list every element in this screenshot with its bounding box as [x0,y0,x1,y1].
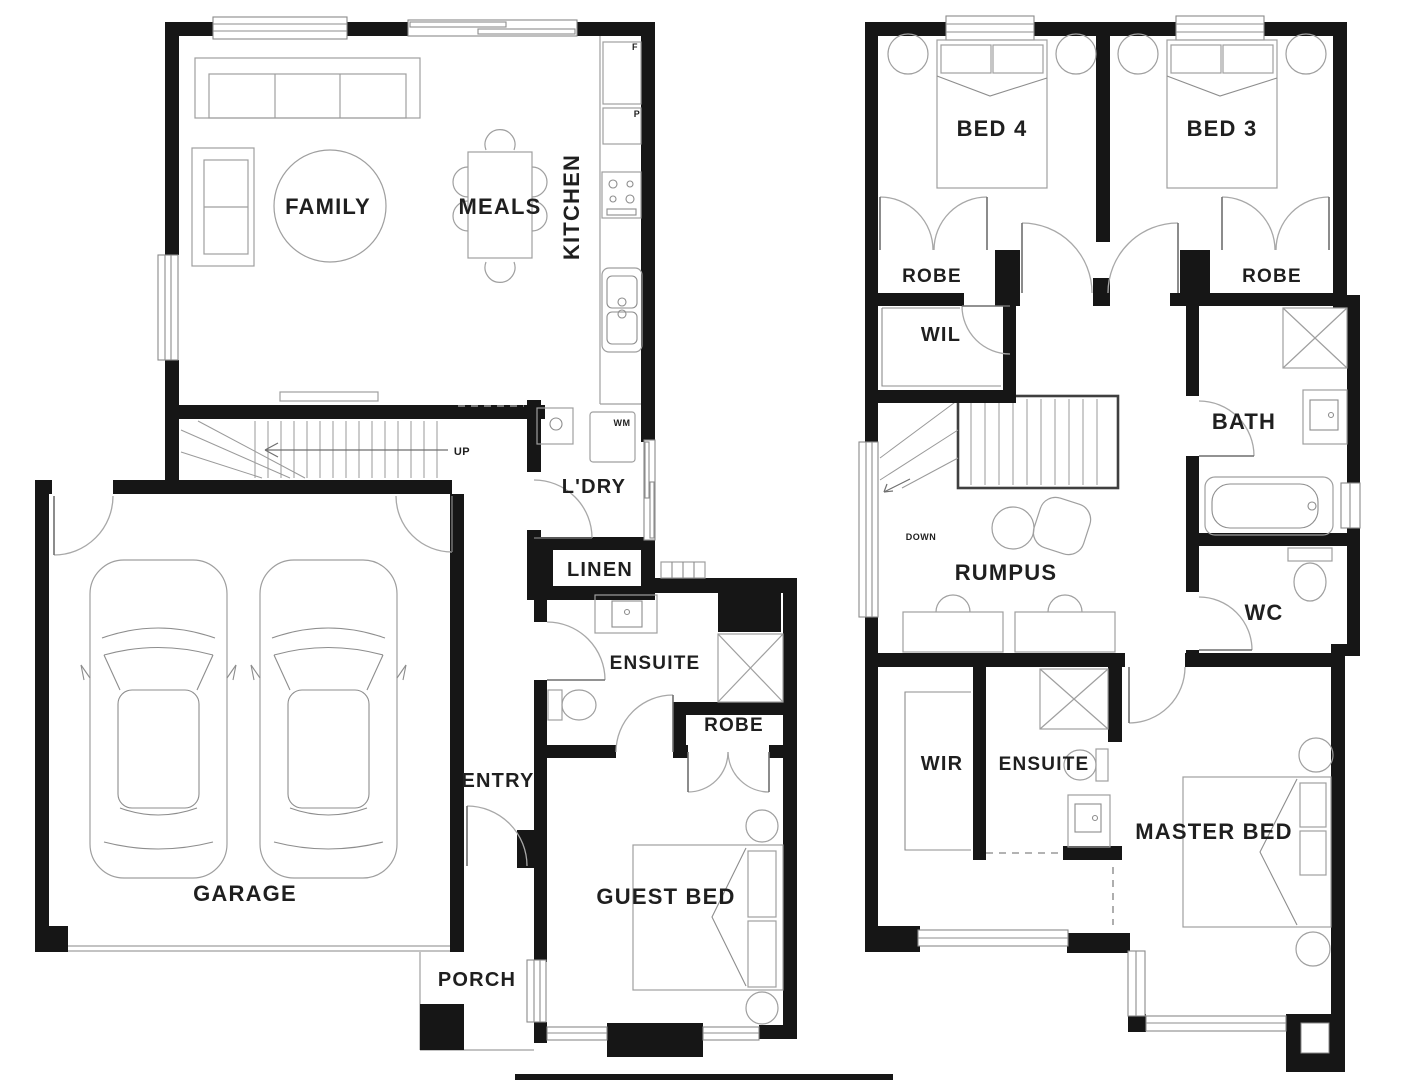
door-garage-side [54,496,113,555]
room-label-ensuite-ground: ENSUITE [610,653,701,674]
robe-doors-bed3 [1222,197,1329,250]
shower-bath [1283,308,1347,368]
room-label-porch: PORCH [438,969,516,991]
car-right [251,560,406,878]
room-label-wir: WIR [921,753,963,775]
room-label-linen: LINEN [567,559,633,581]
window-wir-bottom [918,930,1068,946]
room-label-meals: MEALS [459,194,542,219]
sliding-door-meals-top [408,20,577,36]
staircase-ground [181,421,448,478]
door-bed3 [1108,223,1178,293]
room-label-kitchen: KITCHEN [559,154,584,260]
bed4-furniture [888,34,1096,188]
window-guest-west [527,960,546,1022]
washing-machine-label: WM [614,418,631,428]
window-bed4 [946,16,1034,40]
window-guest-bottom-left [547,1027,607,1040]
floor-plan-sheet: FAMILY MEALS KITCHEN L'DRY LINEN ENSUITE… [0,0,1407,1080]
door-entry-to-garage [396,496,452,552]
room-label-wc: WC [1244,600,1283,625]
guest-bed-furniture [633,810,783,1024]
porch-column [420,1004,464,1050]
pantry-label: P [634,109,641,119]
room-label-bed4: BED 4 [957,116,1028,141]
car-left [81,560,236,878]
shower-ground [718,634,783,702]
linen-cabinet [661,562,705,578]
room-label-entry: ENTRY [461,770,534,792]
master-bed-furniture [1183,738,1333,966]
window-family-top [213,17,347,39]
window-guest-bottom-right [703,1027,759,1040]
room-label-garage: GARAGE [193,881,297,906]
fridge-label: F [632,42,638,52]
room-label-robe-bed4: ROBE [902,266,962,287]
room-label-guest-bed: GUEST BED [596,884,735,909]
stairs-up-label: UP [454,446,470,458]
toilet-wc [1288,548,1332,601]
kitchen-fixtures [600,36,642,404]
beanbag-chair [992,493,1095,559]
room-label-robe-ground: ROBE [704,715,764,736]
robe-doors-bed4 [880,197,987,250]
room-label-family: FAMILY [285,194,371,219]
room-label-ensuite-upper: ENSUITE [999,754,1090,775]
door-master [1129,667,1185,723]
armchair [192,148,254,266]
toilet-ground [548,690,596,720]
upper-floor-plan: BED 4 BED 3 ROBE ROBE WIL BATH RUMPUS WC… [859,16,1360,1072]
porch-outline [420,952,534,1050]
room-label-bath: BATH [1212,409,1276,434]
bath-vanity [1303,390,1347,444]
sliding-door-laundry [644,440,655,540]
robe-doors-guest [688,752,769,792]
stairs-down-label: DOWN [906,532,937,542]
door-ensuite-hall [547,622,605,680]
window-master-bottom [1146,1016,1286,1031]
walls-upper [865,22,1360,1072]
room-label-master-bed: MASTER BED [1135,819,1292,844]
staircase-upper [880,396,1118,492]
room-label-bed3: BED 3 [1187,116,1258,141]
window-stair-left [859,442,878,617]
room-label-rumpus: RUMPUS [955,560,1058,585]
stairs-up-arrow [265,443,448,457]
vanity-ensuite-upper [1068,795,1110,847]
room-label-laundry: L'DRY [562,476,626,498]
floor-plan-drawing: FAMILY MEALS KITCHEN L'DRY LINEN ENSUITE… [0,0,1407,1080]
garage-door [68,946,450,951]
room-label-wil: WIL [921,324,961,346]
ensuite-vanity [595,595,657,633]
window-bath [1341,483,1360,528]
bed3-furniture [1118,34,1326,188]
window-step-vertical [1128,951,1145,1016]
bathtub [1205,477,1333,535]
window-bed3 [1176,16,1264,40]
door-wil [962,306,1010,354]
door-bed4 [1022,223,1092,293]
tv-unit [280,392,378,401]
rumpus-desks [903,595,1115,652]
ground-floor-plan: FAMILY MEALS KITCHEN L'DRY LINEN ENSUITE… [35,17,893,1080]
shower-ensuite-upper [1040,669,1108,729]
door-ensuite-guest [616,695,673,752]
kitchen-sink [602,268,642,352]
room-label-robe-bed3: ROBE [1242,266,1302,287]
cooktop [602,172,641,218]
window-family-left [158,255,178,360]
sofa [195,58,420,118]
wil-shelves [882,308,1001,386]
